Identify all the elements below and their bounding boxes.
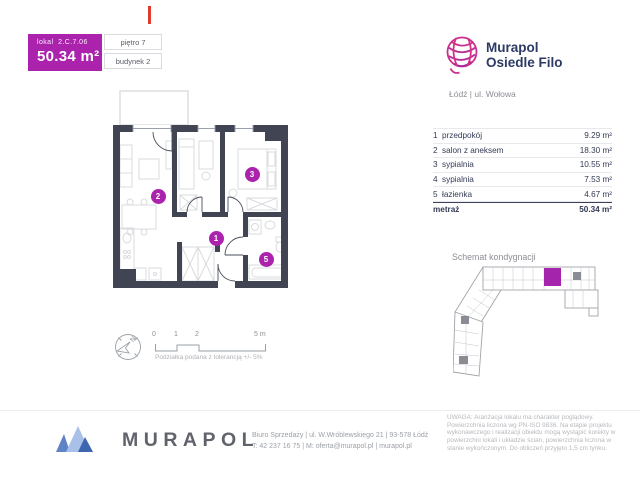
footer-divider: [0, 410, 640, 411]
room-name: 1przedpokój: [433, 131, 482, 140]
table-row: 3sypialnia 10.55 m²: [433, 158, 612, 173]
unit-number-line: lokal 2.C.7.06: [37, 39, 102, 46]
total-area-row: metraż 50.34 m²: [433, 202, 612, 217]
total-label: metraż: [433, 205, 459, 214]
floor-schematic: [453, 264, 631, 384]
brand-line1: Murapol: [486, 40, 563, 55]
footer-wordmark: MURAPOL: [122, 429, 259, 452]
scale-tick-1: 1: [174, 331, 178, 338]
scale-tick-0: 0: [152, 331, 156, 338]
unit-number-box: lokal 2.C.7.06 50.34 m²: [28, 34, 102, 71]
room-area: 4.67 m²: [584, 190, 612, 199]
floor-plan: [95, 85, 315, 315]
room-marker-5: 5: [259, 252, 274, 267]
room-marker-2: 2: [151, 189, 166, 204]
scale-tick-5m: 5 m: [254, 331, 266, 338]
room-marker-1: 1: [209, 231, 224, 246]
room-name: 3sypialnia: [433, 160, 474, 169]
room-name: 2salon z aneksem: [433, 146, 503, 155]
sales-office-contact: Biuro Sprzedaży | ul. W.Wróblewskiego 21…: [252, 431, 428, 452]
unit-offer-card: lokal 2.C.7.06 50.34 m² piętro 7 budynek…: [0, 0, 640, 480]
unit-label: lokal: [37, 39, 53, 46]
scale-bar: [155, 342, 269, 354]
room-area: 7.53 m²: [584, 175, 612, 184]
table-row: 2salon z aneksem 18.30 m²: [433, 144, 612, 159]
legal-disclaimer: UWAGA: Aranżacja lokalu ma charakter pog…: [447, 414, 625, 453]
table-row: 1przedpokój 9.29 m²: [433, 128, 612, 144]
unit-area: 50.34 m²: [37, 48, 102, 65]
crop-mark: [148, 6, 151, 24]
floor-box: piętro 7: [104, 34, 162, 50]
highlighted-unit: [544, 268, 561, 286]
table-row: 4sypialnia 7.53 m²: [433, 173, 612, 188]
room-area: 9.29 m²: [584, 131, 612, 140]
compass-icon: [112, 331, 144, 363]
address-line1: Biuro Sprzedaży | ul. W.Wróblewskiego 21…: [252, 431, 428, 442]
room-table: 1przedpokój 9.29 m² 2salon z aneksem 18.…: [433, 128, 612, 217]
scale-tolerance-note: Podziałka podana z tolerancją +/- 5%: [155, 354, 263, 361]
total-area: 50.34 m²: [579, 205, 612, 214]
brand-line2: Osiedle Filo: [486, 55, 563, 70]
building-box: budynek 2: [104, 53, 162, 69]
brand-name: Murapol Osiedle Filo: [486, 40, 563, 70]
room-name: 5łazienka: [433, 190, 472, 199]
address-line2: T: 42 237 16 75 | M: oferta@murapol.pl |…: [252, 442, 428, 453]
room-marker-3: 3: [245, 167, 260, 182]
murapol-wordmark-icon: [54, 426, 114, 453]
room-area: 10.55 m²: [580, 160, 612, 169]
murapol-sphere-logo-icon: [444, 32, 481, 80]
scale-tick-2: 2: [195, 331, 199, 338]
table-row: 5łazienka 4.67 m²: [433, 187, 612, 202]
unit-number: 2.C.7.06: [58, 39, 88, 46]
room-area: 18.30 m²: [580, 146, 612, 155]
brand-location: Łódź | ul. Wołowa: [449, 89, 516, 99]
schematic-title: Schemat kondygnacji: [452, 252, 536, 262]
room-name: 4sypialnia: [433, 175, 474, 184]
